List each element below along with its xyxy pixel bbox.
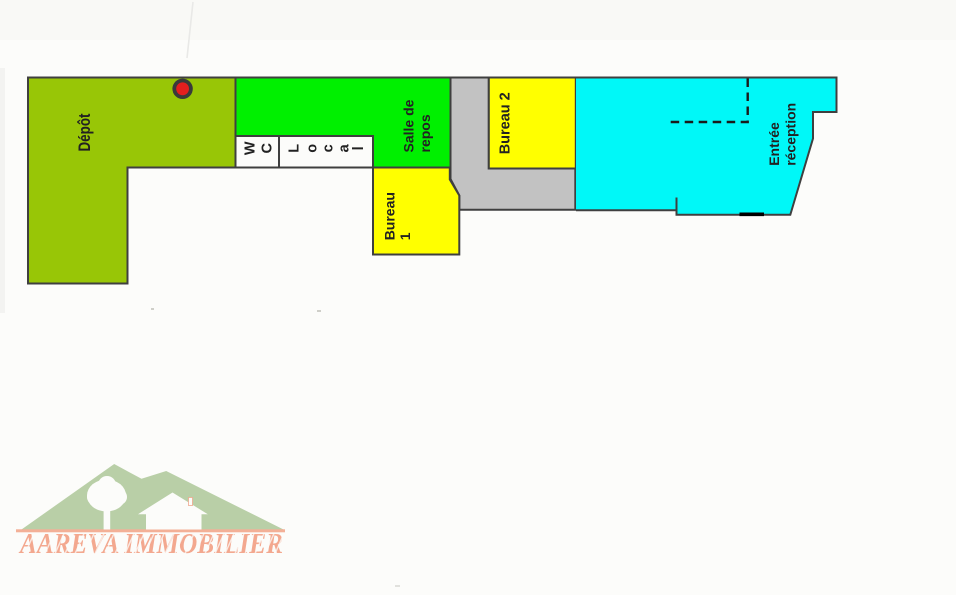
svg-text:Bureau 2: Bureau 2: [497, 92, 514, 154]
svg-text:o: o: [304, 144, 320, 153]
svg-text:c: c: [321, 144, 337, 152]
svg-text:L: L: [287, 144, 303, 153]
svg-text:Dépôt: Dépôt: [76, 113, 94, 151]
svg-text:C: C: [259, 143, 275, 154]
svg-text:l: l: [351, 146, 367, 150]
svg-text:W: W: [242, 141, 258, 155]
